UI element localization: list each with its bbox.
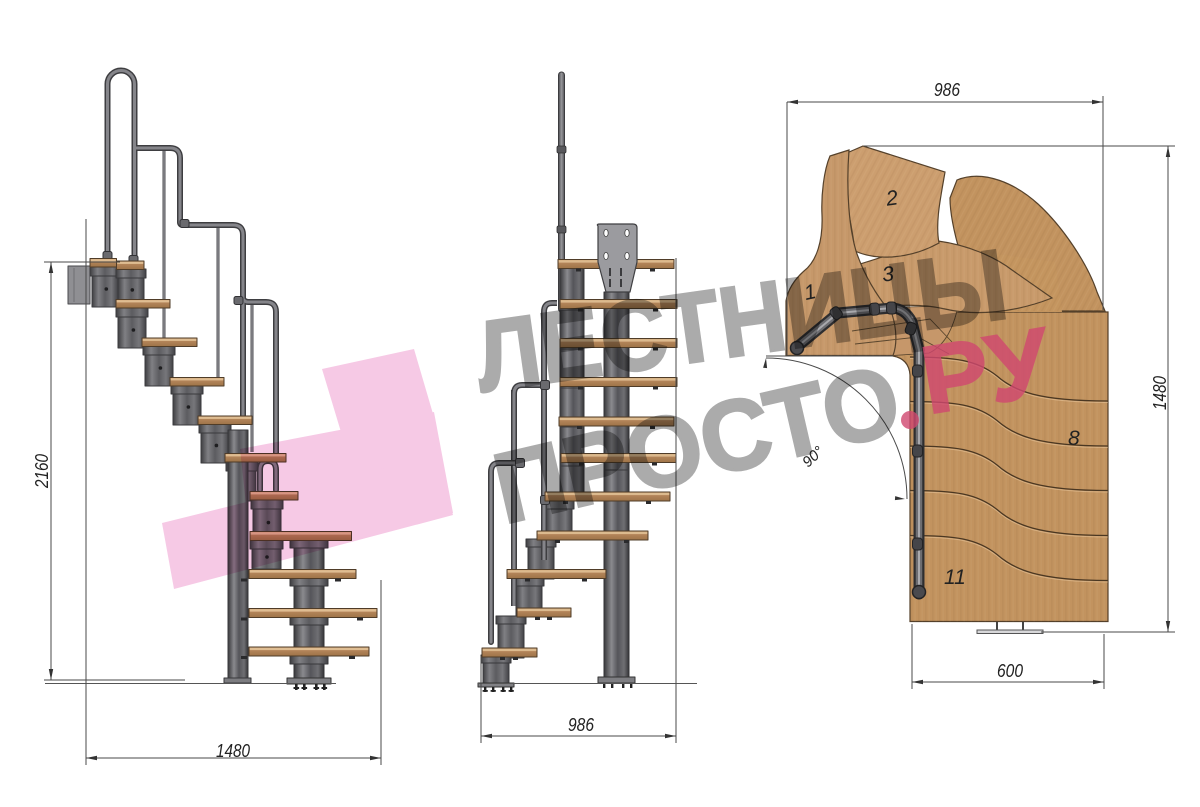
svg-text:986: 986 — [568, 715, 595, 735]
svg-text:2160: 2160 — [32, 454, 52, 489]
svg-text:РУ: РУ — [914, 308, 1059, 435]
svg-text:986: 986 — [934, 80, 961, 100]
svg-text:11: 11 — [944, 566, 966, 589]
svg-text:1480: 1480 — [216, 741, 250, 761]
svg-text:1480: 1480 — [1150, 376, 1170, 410]
svg-text:8: 8 — [1068, 427, 1080, 450]
svg-text:600: 600 — [997, 661, 1023, 681]
